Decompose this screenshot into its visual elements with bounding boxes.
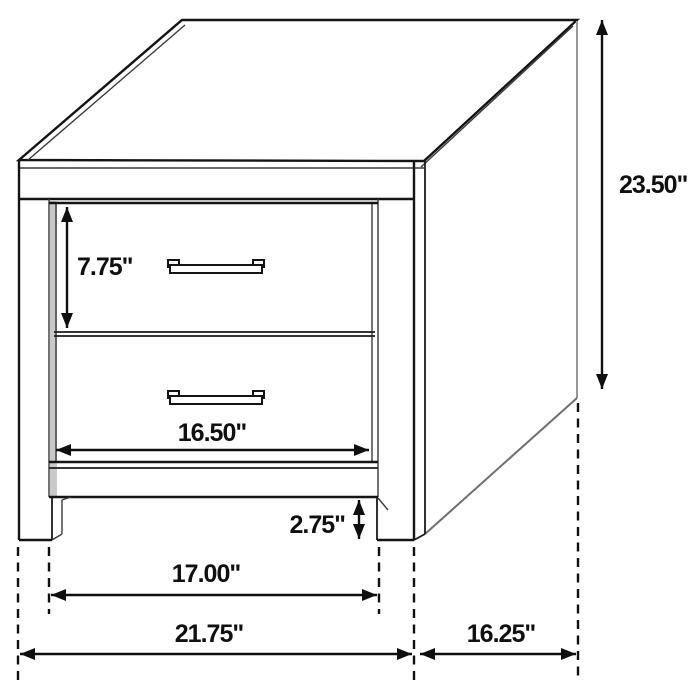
drawer-one-handle-icon (168, 260, 264, 273)
handle-bar (170, 265, 262, 273)
dim-label-drawer-front-height: 7.75" (77, 253, 133, 281)
diagram-canvas: 7.75" 23.50" 16.50" 2.75" 17.00" 21.75" (0, 0, 700, 700)
dim-leg-inner-span: 17.00" (51, 560, 377, 595)
front-left-leg (19, 497, 71, 540)
right-leg-corner-bottom-edge (414, 534, 425, 540)
dim-drawer-opening-width: 16.50" (56, 419, 369, 450)
left-leg-side-face-bottom (52, 534, 62, 540)
top-panel (19, 20, 577, 199)
dim-overall-width: 21.75" (20, 620, 412, 654)
dim-label-base-clearance: 2.75" (289, 511, 345, 539)
dim-drawer-front-height: 7.75" (67, 207, 133, 328)
nightstand-dimension-diagram: 7.75" 23.50" 16.50" 2.75" 17.00" 21.75" (0, 0, 700, 700)
handle-bar (170, 396, 262, 404)
side-panel-bottom-edge (425, 398, 577, 534)
dim-overall-height: 23.50" (602, 20, 688, 389)
drawer-two-handle-icon (168, 391, 264, 404)
dim-base-clearance: 2.75" (289, 500, 359, 539)
dim-label-leg-inner-span: 17.00" (172, 560, 241, 588)
dim-label-overall-width: 21.75" (175, 620, 244, 648)
right-leg-side-face-line (378, 498, 388, 510)
front-frame (19, 160, 378, 540)
dim-label-drawer-opening-width: 16.50" (178, 419, 247, 447)
dim-label-side-depth: 16.25" (467, 620, 536, 648)
top-face (19, 20, 577, 161)
front-right-leg (377, 497, 425, 540)
dim-side-depth: 16.25" (420, 620, 576, 654)
dim-label-overall-height: 23.50" (619, 171, 688, 199)
